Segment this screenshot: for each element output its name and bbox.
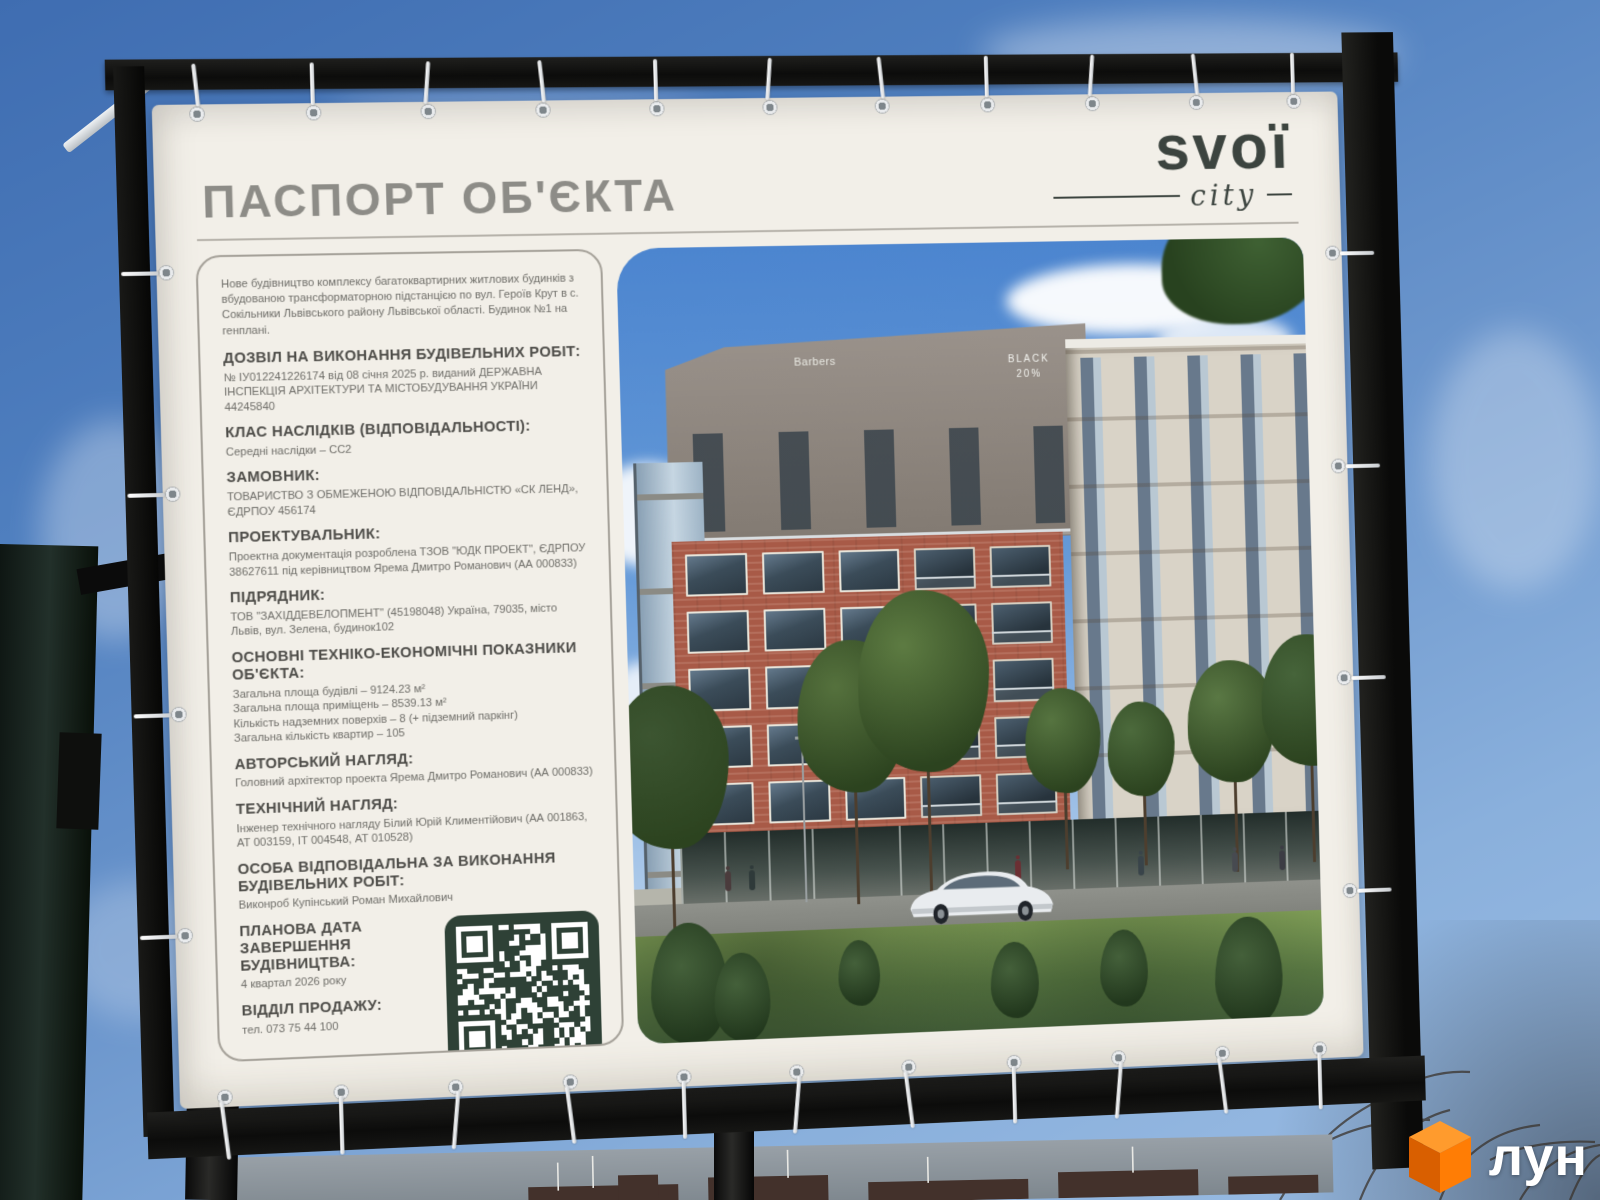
passport-section: ВІДДІЛ ПРОДАЖУ:тел. 073 75 44 100: [241, 995, 437, 1038]
tree: [1260, 633, 1324, 876]
passport-section: ОСНОВНІ ТЕХНІКО-ЕКОНОМІЧНІ ПОКАЗНИКИ ОБ'…: [231, 640, 593, 747]
frame-top-bar: [105, 52, 1398, 90]
passport-banner: ПАСПОРТ ОБ'ЄКТА svoї city Нове будівницт…: [152, 91, 1364, 1108]
grommet: [1343, 883, 1358, 898]
grommet: [333, 1084, 349, 1100]
sale-sign: BLACK 20%: [1008, 351, 1051, 382]
page-title: ПАСПОРТ ОБ'ЄКТА: [201, 169, 678, 229]
balcony-opening: [914, 547, 976, 591]
section-text: № ІУ012241226174 від 08 січня 2025 р. ви…: [223, 363, 584, 415]
passport-section: АВТОРСЬКИЙ НАГЛЯД:Головний архітектор пр…: [234, 745, 594, 792]
logo-line: [1054, 195, 1181, 199]
section-text: Виконроб Купінський Роман Михайлович: [238, 885, 598, 913]
logo-line: [1267, 193, 1292, 195]
shrub: [713, 952, 771, 1043]
balcony-opening: [991, 602, 1053, 646]
zip-tie: [984, 56, 989, 98]
grommet: [177, 928, 193, 944]
shrub: [649, 922, 729, 1045]
passport-section: ЗАМОВНИК:ТОВАРИСТВО З ОБМЕЖЕНОЮ ВІДПОВІД…: [226, 462, 587, 520]
window: [838, 549, 900, 593]
window: [689, 667, 752, 711]
grommet: [217, 1089, 233, 1105]
tree-canopy: [1260, 633, 1324, 768]
section-text: ТОВАРИСТВО З ОБМЕЖЕНОЮ ВІДПОВІДАЛЬНІСТЮ …: [227, 482, 587, 520]
passport-section: КЛАС НАСЛІДКІВ (ВІДПОВІДАЛЬНОСТІ):Середн…: [225, 417, 585, 460]
passport-section: ДОЗВІЛ НА ВИКОНАННЯ БУДІВЕЛЬНИХ РОБІТ:№ …: [223, 343, 584, 415]
object-info-box: Нове будівництво комплексу багатоквартир…: [195, 249, 624, 1063]
window: [762, 551, 825, 595]
adjacent-billboard-pole: [0, 544, 98, 1200]
banner-header: ПАСПОРТ ОБ'ЄКТА svoї city: [192, 114, 1302, 229]
tree: [1024, 687, 1104, 879]
window: [690, 725, 753, 769]
grommet: [535, 102, 551, 117]
grommet: [980, 97, 995, 112]
foreground-foliage: [1160, 237, 1324, 325]
grommet: [158, 265, 174, 281]
grommet: [1084, 96, 1099, 111]
person-figure: [725, 871, 732, 892]
grommet: [762, 100, 777, 115]
person-figure: [1137, 855, 1143, 876]
person-figure: [1232, 852, 1238, 872]
pole-bracket: [56, 732, 101, 829]
zip-tie: [1088, 55, 1094, 97]
render-cloud: [616, 661, 687, 791]
glass-balconies: [633, 462, 717, 973]
construction-billboard-photo: ПАСПОРТ ОБ'ЄКТА svoї city Нове будівницт…: [0, 0, 1600, 1200]
grommet: [171, 707, 187, 723]
passport-section: ПРОЕКТУВАЛЬНИК:Проектна документація роз…: [228, 521, 589, 580]
passport-section: ПЛАНОВА ДАТА ЗАВЕРШЕННЯ БУДІВНИЦТВА:4 кв…: [239, 916, 436, 993]
section-text: ТОВ "ЗАХІДДЕВЕЛОПМЕНТ" (45198048) Україн…: [230, 600, 590, 640]
grommet: [874, 99, 889, 114]
balcony-opening: [990, 545, 1052, 588]
passport-section: ПІДРЯДНИК:ТОВ "ЗАХІДДЕВЕЛОПМЕНТ" (451980…: [230, 580, 591, 640]
grommet: [1325, 246, 1340, 261]
grommet: [676, 1069, 691, 1085]
grommet: [448, 1079, 464, 1095]
tree: [616, 683, 735, 984]
grommet: [305, 105, 321, 120]
qr-code: [444, 910, 602, 1062]
window: [692, 782, 755, 826]
brand-name: svoї: [1052, 118, 1292, 179]
lun-logo-text: лун: [1489, 1126, 1588, 1188]
tree: [1106, 701, 1179, 875]
zip-tie: [1345, 463, 1380, 468]
tree-trunk: [670, 804, 678, 968]
building-render: Barbers BLACK 20%: [616, 237, 1324, 1044]
grommet: [189, 106, 205, 121]
grommet: [1286, 94, 1301, 109]
storefront-sign: Barbers: [794, 356, 836, 369]
window: [687, 610, 750, 654]
white-car: [905, 858, 1058, 927]
render-cloud: [616, 462, 709, 568]
person-figure: [1279, 850, 1285, 870]
window: [685, 553, 748, 597]
person-figure: [749, 870, 756, 891]
grommet: [165, 486, 181, 502]
tree-canopy: [1024, 687, 1102, 794]
cloud: [1430, 330, 1600, 590]
section-heading: ПЛАНОВА ДАТА ЗАВЕРШЕННЯ БУДІВНИЦТВА:: [239, 916, 435, 975]
project-description: Нове будівництво комплексу багатоквартир…: [221, 271, 582, 339]
zip-tie: [1357, 887, 1392, 892]
grommet: [649, 101, 664, 116]
brand-tagline: city: [1053, 177, 1292, 214]
passport-section: ТЕХНІЧНИЙ НАГЛЯД:Інженер технічного нагл…: [236, 789, 597, 851]
lun-cube-icon: [1407, 1120, 1473, 1194]
qr-row: ПЛАНОВА ДАТА ЗАВЕРШЕННЯ БУДІВНИЦТВА:4 кв…: [239, 910, 602, 1062]
banner-content: Нове будівництво комплексу багатоквартир…: [195, 237, 1324, 1062]
grommet: [1331, 458, 1346, 473]
section-text: Проектна документація розроблена ТЗОВ "Ю…: [229, 541, 589, 580]
tree-canopy: [616, 683, 731, 850]
grommet: [563, 1074, 579, 1090]
lun-watermark: лун: [1407, 1120, 1588, 1194]
grommet: [1337, 671, 1352, 686]
svoi-city-logo: svoї city: [1052, 118, 1293, 215]
grommet: [1188, 95, 1203, 110]
tree-canopy: [856, 589, 992, 774]
passport-section: ОСОБА ВІДПОВІДАЛЬНА ЗА ВИКОНАННЯ БУДІВЕЛ…: [237, 849, 598, 914]
billboard: ПАСПОРТ ОБ'ЄКТА svoї city Нове будівницт…: [115, 44, 1420, 1166]
tree-canopy: [1106, 701, 1176, 798]
grommet: [421, 104, 437, 119]
